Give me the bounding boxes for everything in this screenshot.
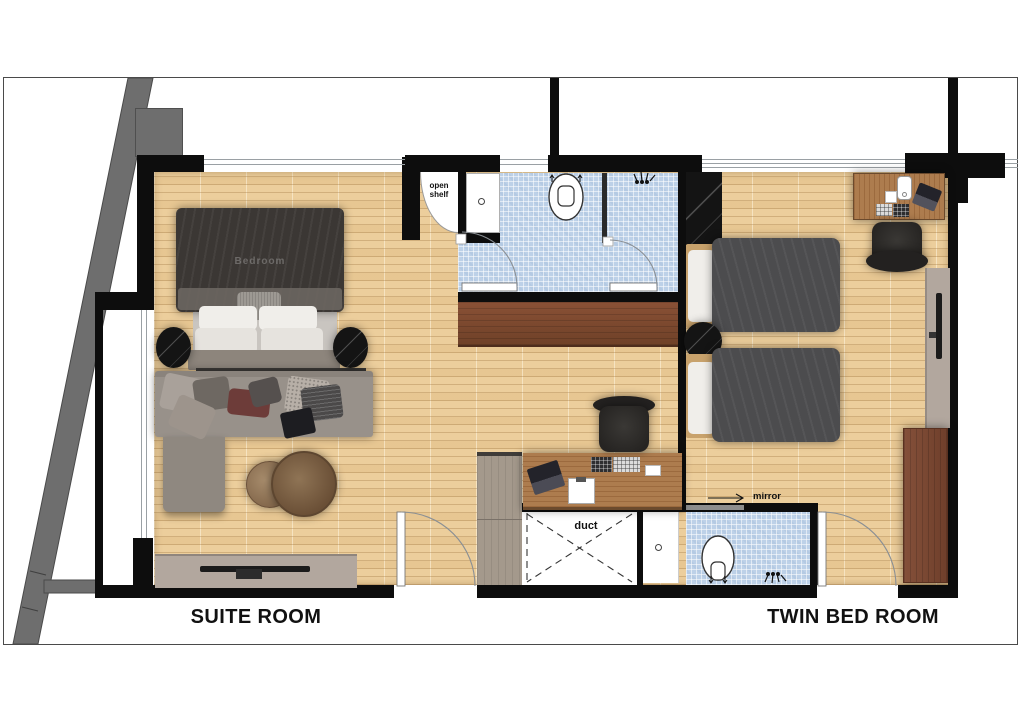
vanity-drain-icon	[655, 544, 662, 551]
twin-bed-room-label: TWIN BED ROOM	[743, 606, 963, 629]
window-left	[141, 310, 142, 538]
mirror-strip	[686, 505, 744, 510]
wall-stub	[948, 78, 958, 156]
suite-room-label: SUITE ROOM	[146, 606, 366, 629]
office-chair-back	[866, 250, 928, 272]
vanity-drain-icon	[478, 198, 485, 205]
nightstand-round	[156, 327, 191, 368]
twin-bed-pillow	[688, 250, 715, 322]
wall-bottom	[898, 585, 958, 598]
dispenser-cap	[902, 192, 907, 197]
marble-closet	[686, 172, 722, 245]
bathroom-cabinet	[458, 302, 678, 347]
wall	[548, 155, 680, 172]
bathroom-partition	[602, 173, 607, 243]
wall	[810, 503, 818, 585]
window	[500, 164, 548, 165]
window	[500, 159, 548, 160]
floor-plan: open shelf Bedroom	[0, 0, 1024, 724]
twin-bathroom-floor	[686, 512, 810, 585]
keyboard	[613, 457, 640, 472]
cube-item	[885, 191, 897, 203]
tv-bracket	[929, 332, 936, 338]
duct-label: duct	[556, 520, 616, 532]
wall-step	[95, 292, 137, 310]
wall	[458, 292, 678, 302]
suite-bed-foot	[188, 350, 340, 370]
office-chair	[599, 406, 649, 452]
window	[204, 159, 405, 160]
wall	[458, 233, 500, 243]
wall	[680, 155, 702, 172]
pillow	[259, 306, 317, 330]
window	[1005, 163, 1018, 164]
wall-left-upper	[137, 157, 154, 310]
twin-bed-duvet	[712, 348, 840, 442]
wall-pillar	[402, 157, 420, 240]
keypad	[591, 457, 612, 472]
wall-left-lower	[95, 310, 103, 598]
window	[702, 163, 905, 164]
twin-bed-duvet	[712, 238, 840, 332]
wall-stub	[550, 78, 559, 158]
window	[702, 167, 905, 168]
wall	[458, 172, 466, 233]
clipboard-clip	[576, 477, 586, 482]
tv-stand	[236, 569, 262, 579]
nightstand-round	[333, 327, 368, 368]
window	[204, 164, 405, 165]
mirror-label: mirror	[753, 491, 781, 502]
open-shelf-label: open shelf	[420, 181, 458, 199]
coffee-table-large	[271, 451, 337, 517]
window	[1005, 159, 1018, 160]
twin-tv	[936, 293, 942, 359]
window-left	[146, 310, 147, 538]
wardrobe	[903, 428, 948, 583]
cabinet-divider	[477, 519, 522, 520]
twin-bed-pillow	[688, 362, 715, 434]
keypad	[893, 204, 909, 217]
bed-watermark: Bedroom	[176, 256, 344, 267]
sofa-chaise	[163, 437, 225, 512]
notepad	[645, 465, 661, 476]
structural-column	[135, 108, 183, 157]
keyboard	[876, 204, 892, 216]
window	[1005, 167, 1018, 168]
wall-stub	[133, 538, 153, 585]
pillow	[199, 306, 257, 330]
wall	[637, 512, 643, 585]
wall-bottom	[477, 585, 817, 598]
window	[702, 159, 905, 160]
